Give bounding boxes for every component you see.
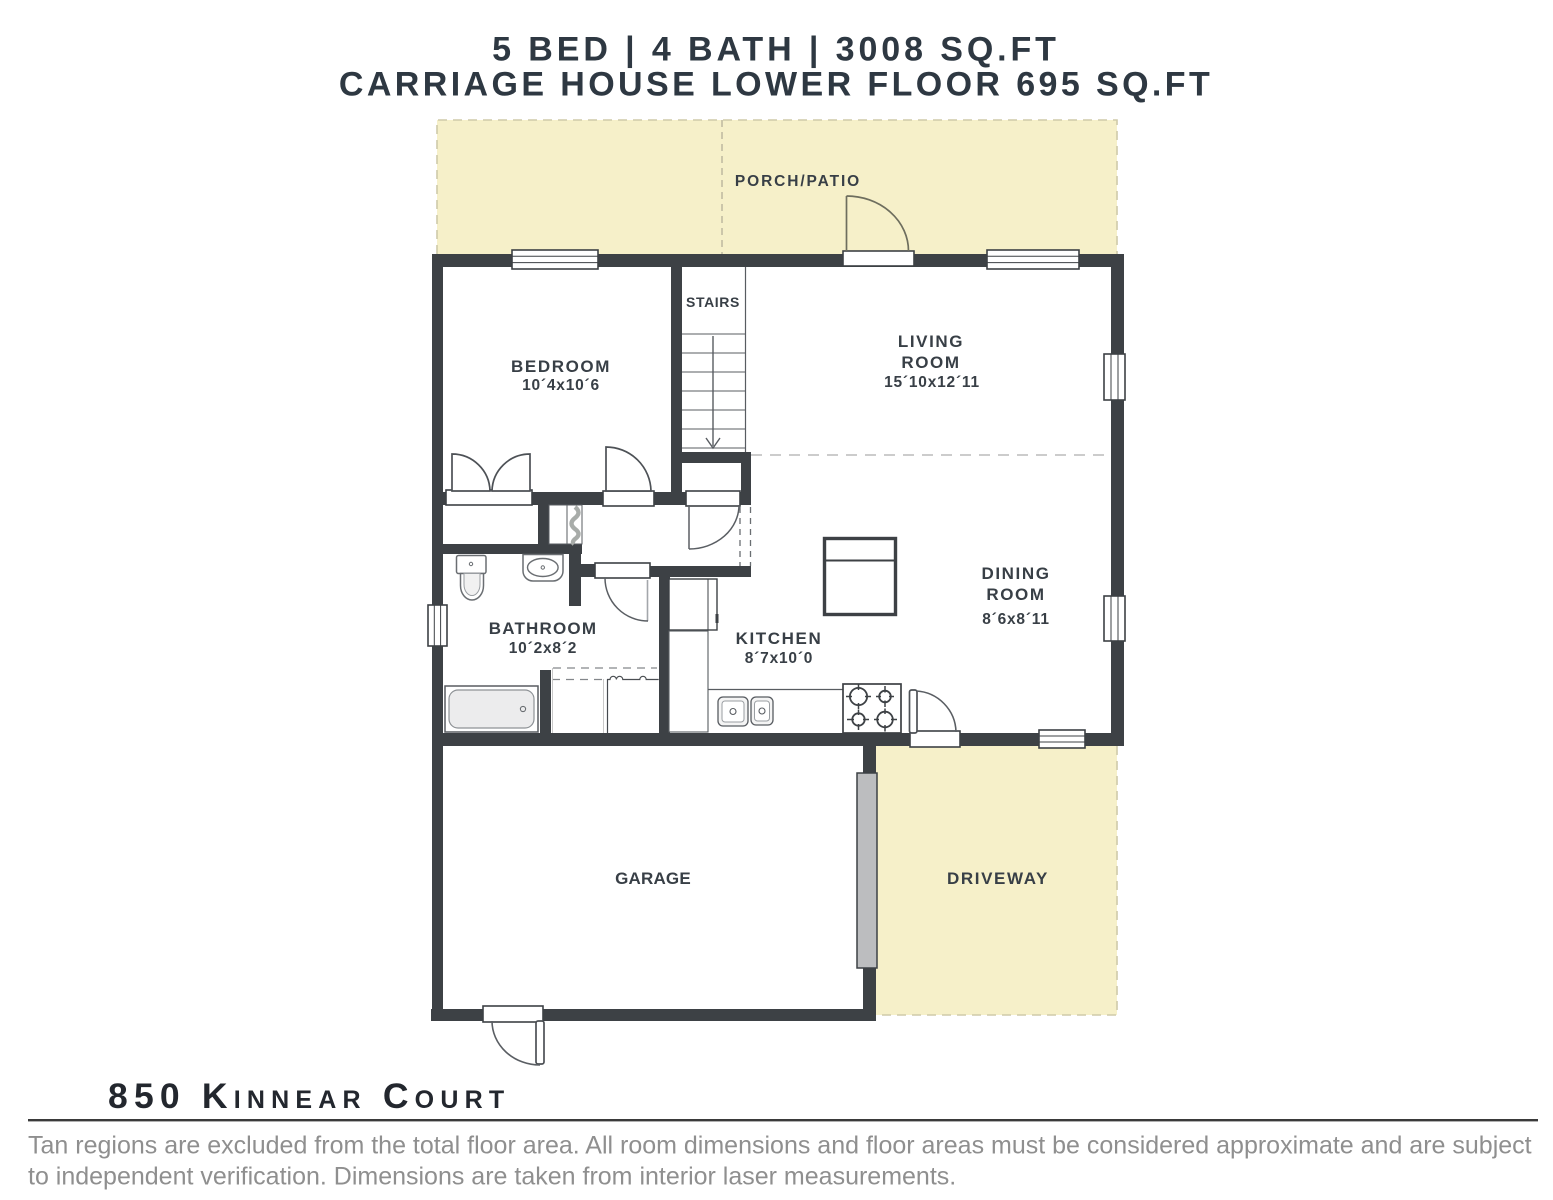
svg-text:10´2x8´2: 10´2x8´2 <box>509 640 577 657</box>
svg-text:15´10x12´11: 15´10x12´11 <box>884 374 980 391</box>
svg-text:BATHROOM: BATHROOM <box>489 619 597 638</box>
svg-text:DINING: DINING <box>981 564 1050 583</box>
svg-text:850 Kinnear Court: 850 Kinnear Court <box>108 1076 510 1116</box>
svg-text:PORCH/PATIO: PORCH/PATIO <box>735 173 861 190</box>
svg-text:8´6x8´11: 8´6x8´11 <box>982 611 1050 628</box>
svg-text:DRIVEWAY: DRIVEWAY <box>947 869 1049 888</box>
svg-text:STAIRS: STAIRS <box>686 294 740 310</box>
svg-text:ROOM: ROOM <box>986 585 1045 604</box>
svg-text:ROOM: ROOM <box>901 353 960 372</box>
svg-text:10´4x10´6: 10´4x10´6 <box>522 377 600 394</box>
svg-text:BEDROOM: BEDROOM <box>511 357 611 376</box>
svg-text:to independent verification. D: to independent verification. Dimensions … <box>28 1163 956 1191</box>
svg-text:KITCHEN: KITCHEN <box>736 629 823 648</box>
svg-text:5 BED | 4 BATH | 3008 SQ.FT: 5 BED | 4 BATH | 3008 SQ.FT <box>492 31 1060 69</box>
svg-text:CARRIAGE HOUSE LOWER FLOOR 695: CARRIAGE HOUSE LOWER FLOOR 695 SQ.FT <box>339 66 1213 104</box>
svg-text:GARAGE: GARAGE <box>615 869 691 888</box>
svg-text:8´7x10´0: 8´7x10´0 <box>745 650 813 667</box>
svg-text:Tan regions are excluded from: Tan regions are excluded from the total … <box>28 1132 1532 1160</box>
svg-text:LIVING: LIVING <box>898 332 964 351</box>
